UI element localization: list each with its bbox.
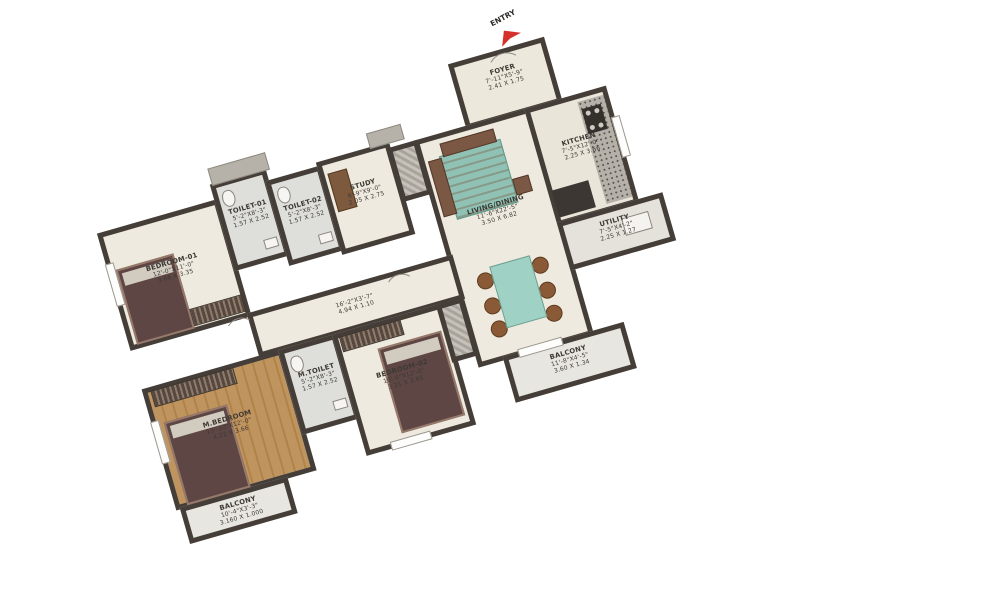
floor-plan-page: ENTRY FOYER7'-11"X5'-9"2.41 X 1.75 KITCH… (0, 0, 1000, 600)
floor-plan: ENTRY FOYER7'-11"X5'-9"2.41 X 1.75 KITCH… (79, 17, 722, 547)
entry-label: ENTRY (489, 8, 517, 29)
